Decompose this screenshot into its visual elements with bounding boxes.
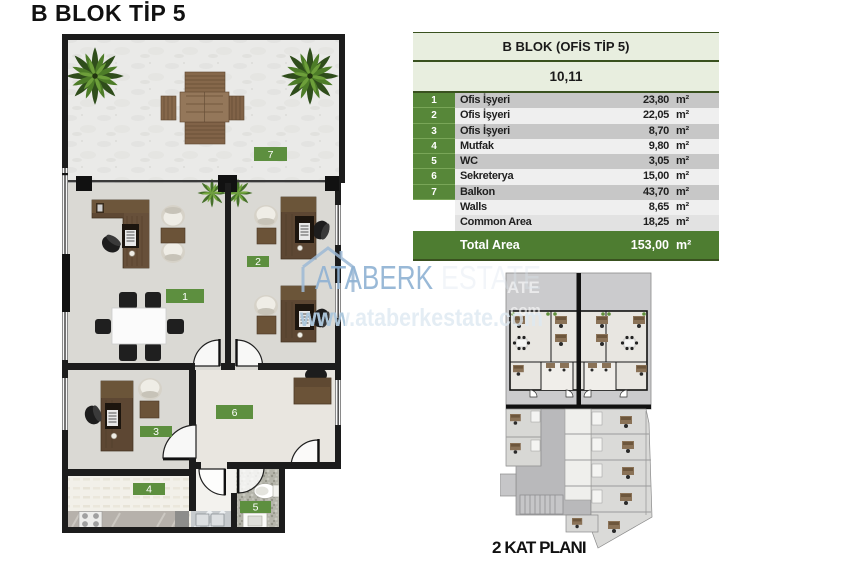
svg-text:6: 6 (232, 407, 238, 419)
svg-text:4: 4 (146, 484, 152, 496)
svg-text:ATABERK: ATABERK (315, 260, 433, 297)
svg-text:2: 2 (255, 256, 261, 268)
svg-text:3: 3 (153, 426, 159, 438)
svg-text:1: 1 (182, 291, 188, 303)
svg-text:7: 7 (268, 149, 274, 161)
svg-text:ESTATE: ESTATE (441, 260, 541, 297)
svg-text:5: 5 (253, 502, 259, 514)
